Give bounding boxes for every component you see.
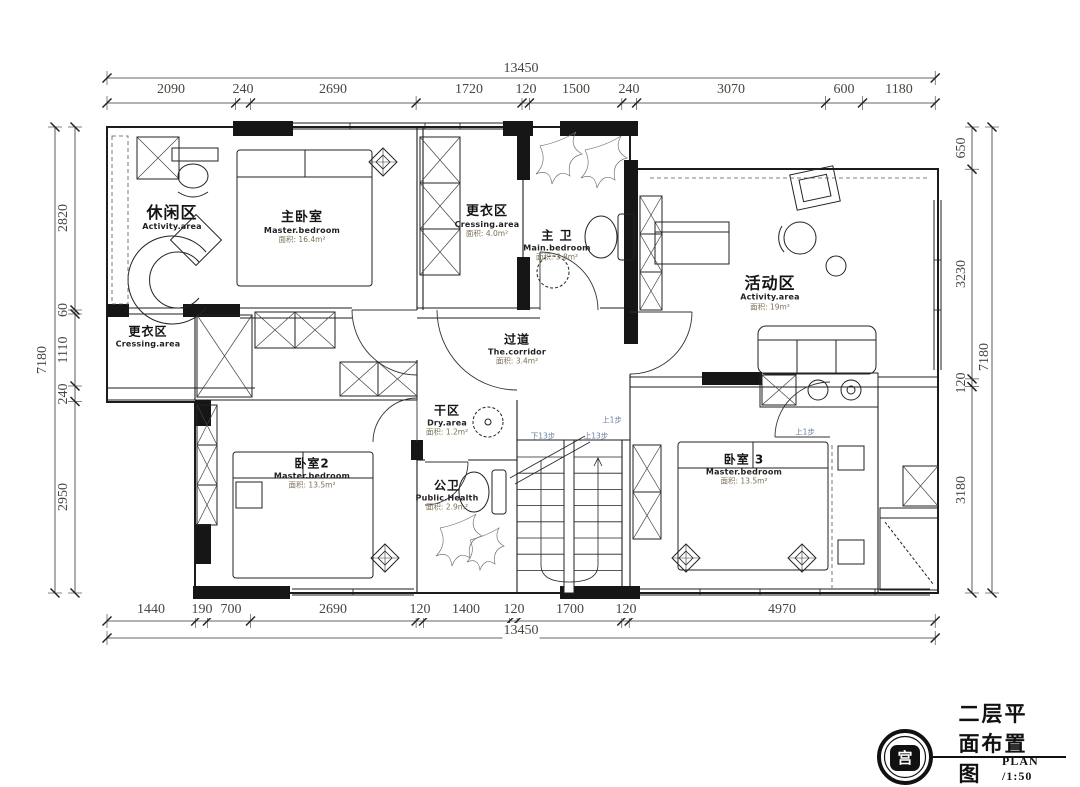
room-label-bedroom3: 卧室 3 Master.bedroom 面积: 13.5m² [706, 454, 782, 487]
dim-bottom-seg: 1700 [555, 602, 585, 618]
room-label-master-bath: 主 卫 Main.bedroom 面积: 3.8m² [523, 230, 590, 263]
floor-plan-page: 宫 13450 2090 240 2690 1720 120 1500 240 … [0, 0, 1080, 787]
furniture [128, 148, 938, 593]
dim-bottom-seg: 1440 [136, 602, 166, 618]
dim-bottom-overall: 13450 [503, 623, 540, 639]
room-label-lounge: 休闲区 Activity.area [142, 204, 202, 232]
dim-bottom-seg: 190 [191, 602, 214, 618]
room-label-master-bedroom: 主卧室 Master.bedroom 面积: 16.4m² [264, 211, 340, 245]
dim-top-overall: 13450 [503, 61, 540, 77]
dim-bottom-seg: 120 [615, 602, 638, 618]
dim-top-seg: 600 [833, 82, 856, 98]
dim-bottom-seg: 120 [409, 602, 432, 618]
logo-glyph: 宫 [897, 749, 912, 767]
room-label-public-bath: 公卫 Public.Health 面积: 2.9m² [416, 480, 479, 513]
dim-bottom-seg: 1400 [451, 602, 481, 618]
dim-left-seg: 1110 [56, 336, 72, 365]
room-label-activity: 活动区 Activity.area 面积: 19m² [740, 274, 800, 311]
dim-right-seg: 650 [954, 137, 970, 160]
dim-right-overall: 7180 [977, 342, 993, 372]
step-up-note-2: 上1步 [795, 427, 815, 438]
room-label-bedroom2: 卧室2 Master.bedroom 面积: 13.5m² [274, 458, 350, 491]
dim-bottom-seg: 700 [220, 602, 243, 618]
dim-left-seg: 2820 [56, 203, 72, 233]
room-label-dressing-left: 更衣区 Cressing.area [116, 326, 181, 349]
dim-top-seg: 120 [515, 82, 538, 98]
dim-top-seg: 1720 [454, 82, 484, 98]
room-label-dry-area: 干区 Dry.area 面积: 1.2m² [426, 405, 468, 438]
stair-down-note: 下13步 [531, 431, 556, 442]
dim-bottom-seg: 4970 [767, 602, 797, 618]
dim-top-seg: 1180 [884, 82, 913, 98]
dim-top-seg: 3070 [716, 82, 746, 98]
drawing-scale: PLAN /1:50 [1002, 754, 1054, 784]
dim-top-seg: 2690 [318, 82, 348, 98]
dim-bottom-seg: 120 [503, 602, 526, 618]
dim-left-seg: 60 [56, 302, 72, 318]
dim-left-seg: 2950 [56, 482, 72, 512]
stair-up-note: 上13步 [584, 431, 609, 442]
wall-piers [107, 121, 762, 599]
dim-right-seg: 3230 [954, 259, 970, 289]
step-up-note-1: 上1步 [602, 415, 622, 426]
dim-top-seg: 240 [618, 82, 641, 98]
dim-right-seg: 120 [954, 372, 970, 395]
dim-left-overall: 7180 [35, 345, 51, 375]
dim-top-seg: 2090 [156, 82, 186, 98]
dim-left-seg: 240 [56, 383, 72, 406]
dim-bottom-seg: 2690 [318, 602, 348, 618]
dim-top-seg: 1500 [561, 82, 591, 98]
room-label-dressing-top: 更衣区 Cressing.area 面积: 4.0m² [455, 205, 520, 239]
dim-right-seg: 3180 [954, 475, 970, 505]
dim-top-seg: 240 [232, 82, 255, 98]
room-label-corridor: 过道 The.corridor 面积: 3.4m² [488, 334, 546, 367]
floor-plan-drawing: 宫 [0, 0, 1080, 787]
